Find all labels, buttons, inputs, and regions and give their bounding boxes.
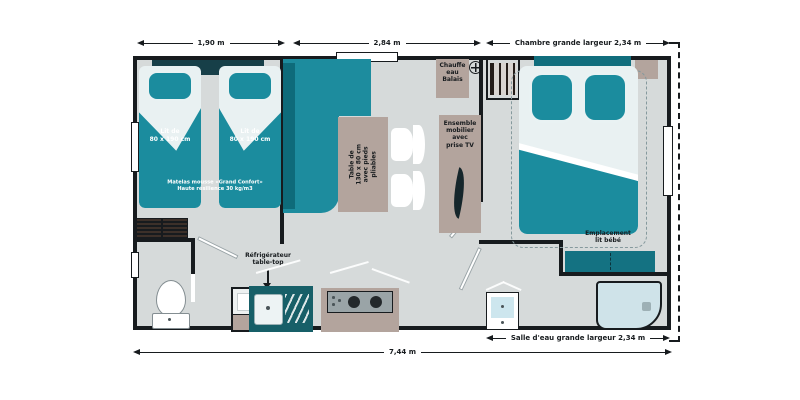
dim-arrow-left-icon — [486, 40, 493, 46]
dim-master-bedroom-width: Chambre grande largeur 2,34 m — [486, 38, 670, 48]
dim-arrow-left-icon — [293, 40, 300, 46]
dim-line — [646, 43, 663, 44]
toilet-tank — [152, 313, 190, 329]
baby-bed-centerline — [610, 253, 611, 270]
dim-arrow-right-icon — [665, 349, 672, 355]
dim-arrow-right-icon — [278, 40, 285, 46]
knob-dot — [338, 299, 341, 302]
table-label: Table de 130 x 80 cm avec pieds pliables — [349, 140, 378, 190]
wall-bathroom-top-right — [559, 272, 671, 276]
dim-line — [230, 43, 279, 44]
dim-label: Salle d'eau grande largeur 2,34 m — [506, 334, 650, 342]
dim-arrow-left-icon — [137, 40, 144, 46]
window-left-bedroom — [131, 122, 139, 172]
knob-dot — [332, 303, 335, 306]
burner-icon — [348, 296, 360, 308]
shower-drain — [642, 302, 651, 311]
dim-left-bedroom-width: 1,90 m — [137, 38, 285, 48]
hob-icon — [327, 291, 393, 313]
window-wc — [131, 252, 139, 278]
drainer-lines-icon — [285, 294, 309, 323]
pillow-icon — [532, 75, 572, 120]
dim-label: 1,90 m — [193, 39, 230, 47]
dim-line — [493, 43, 510, 44]
dashed-extension-bottom — [669, 340, 679, 342]
mattress-note: Matelas mousse «Grand Confort» Haute rés… — [156, 179, 275, 192]
dining-table: Table de 130 x 80 cm avec pieds pliables — [338, 117, 388, 212]
wall-wc-right — [191, 238, 195, 274]
dim-arrow-left-icon — [133, 349, 140, 355]
kitchen-stove-unit — [321, 288, 399, 332]
dim-label: 2,84 m — [369, 39, 406, 47]
chair-icon — [391, 171, 425, 211]
knob-dot — [332, 296, 335, 299]
toilet-icon — [147, 280, 193, 330]
chair-icon — [391, 125, 425, 165]
bed-size-label: Lit de 80 x 190 cm — [139, 128, 201, 144]
pillow-icon — [149, 73, 191, 99]
duvet-icon — [139, 104, 201, 208]
chair-back — [413, 125, 425, 164]
double-bed — [519, 66, 638, 234]
water-heater-cabinet: Chauffe eau Balais — [436, 59, 469, 98]
toilet-bowl — [156, 280, 186, 317]
dim-arrow-right-icon — [663, 335, 670, 341]
bed-size-label: Lit de 80 x 190 cm — [219, 128, 281, 144]
dim-bathroom-width: Salle d'eau grande largeur 2,34 m — [486, 333, 670, 343]
dim-line — [300, 43, 369, 44]
pillow-icon — [585, 75, 625, 120]
dim-line — [140, 352, 384, 353]
dim-label: 7,44 m — [384, 348, 421, 356]
chair-seat — [391, 174, 413, 207]
fridge-pointer-line — [267, 270, 269, 283]
faucet-dot — [266, 306, 270, 310]
baby-bed-area — [565, 251, 655, 272]
dim-arrow-left-icon — [486, 335, 493, 341]
valve-cross-icon — [469, 61, 482, 74]
dim-total-length: 7,44 m — [133, 347, 672, 357]
kitchen-sink-unit — [249, 286, 313, 332]
window-master-bedroom — [663, 126, 673, 196]
burner-icon — [370, 296, 382, 308]
dim-line — [144, 43, 193, 44]
dim-line — [406, 43, 475, 44]
floorplan-canvas: 1,90 m 2,84 m Chambre grande largeur 2,3… — [0, 0, 800, 400]
dashed-extension-line — [678, 42, 680, 342]
bench-backrest — [283, 63, 295, 209]
dim-arrow-right-icon — [474, 40, 481, 46]
shower-tray-icon — [596, 281, 662, 330]
dim-label: Chambre grande largeur 2,34 m — [510, 39, 646, 47]
wardrobe-shelves-icon — [136, 218, 188, 239]
dim-line — [493, 338, 506, 339]
duvet-icon — [219, 104, 281, 208]
washbasin-icon — [486, 292, 519, 330]
basin-drain-dot — [501, 305, 504, 308]
toilet-flush-dot — [168, 318, 171, 321]
pillow-icon — [229, 73, 271, 99]
dim-line — [421, 352, 665, 353]
dashed-extension-top — [669, 42, 679, 44]
dim-living-width: 2,84 m — [293, 38, 481, 48]
baby-bed-label: Emplacement lit bébé — [560, 230, 656, 244]
dim-line — [650, 338, 663, 339]
basin-faucet-dot — [501, 321, 504, 324]
chair-back — [413, 171, 425, 210]
chair-seat — [391, 128, 413, 161]
